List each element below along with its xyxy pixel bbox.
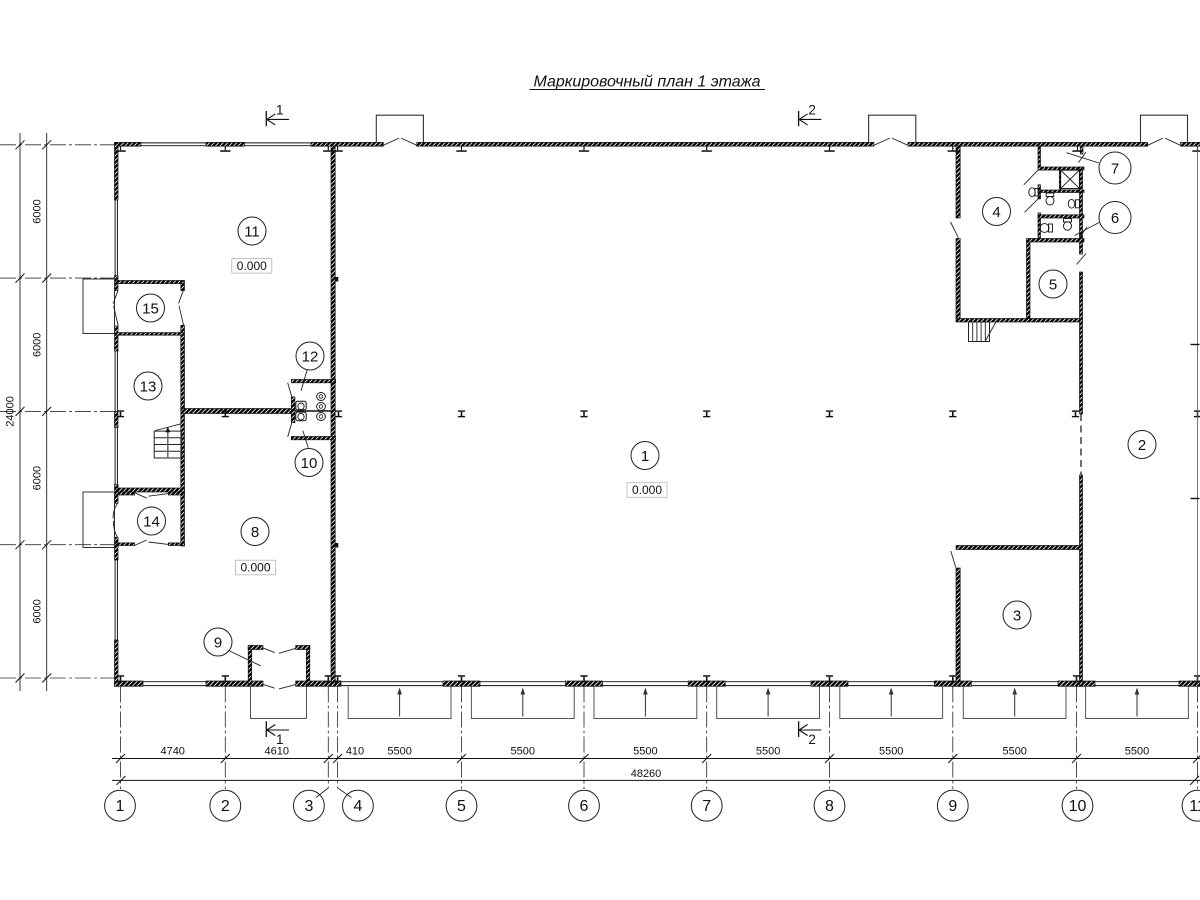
svg-text:12: 12	[302, 348, 319, 365]
svg-text:13: 13	[140, 378, 157, 395]
svg-text:4610: 4610	[265, 746, 289, 758]
svg-text:5: 5	[457, 798, 466, 815]
svg-text:6000: 6000	[32, 599, 44, 623]
svg-text:7: 7	[1111, 160, 1119, 177]
svg-text:Маркировочный план 1 этажа: Маркировочный план 1 этажа	[533, 74, 760, 91]
svg-text:6000: 6000	[32, 333, 44, 357]
svg-text:2: 2	[808, 732, 816, 747]
svg-text:1: 1	[116, 798, 125, 815]
svg-text:6: 6	[1111, 210, 1119, 227]
svg-text:6000: 6000	[32, 199, 44, 223]
svg-text:5500: 5500	[387, 746, 411, 758]
svg-text:5500: 5500	[511, 746, 535, 758]
svg-text:0.000: 0.000	[632, 483, 662, 497]
svg-text:3: 3	[304, 798, 313, 815]
svg-text:15: 15	[142, 300, 159, 317]
svg-text:0.000: 0.000	[237, 259, 267, 273]
svg-text:3: 3	[1013, 607, 1021, 624]
svg-text:9: 9	[214, 634, 222, 651]
svg-text:5500: 5500	[1002, 746, 1026, 758]
svg-text:4740: 4740	[160, 746, 184, 758]
svg-text:2: 2	[221, 798, 230, 815]
svg-text:2: 2	[1138, 437, 1146, 454]
svg-text:410: 410	[346, 746, 364, 758]
svg-text:0.000: 0.000	[240, 561, 270, 575]
svg-text:5: 5	[1049, 276, 1057, 293]
svg-text:5500: 5500	[756, 746, 780, 758]
svg-text:2: 2	[808, 103, 816, 118]
svg-text:24000: 24000	[5, 396, 17, 427]
svg-text:4: 4	[353, 798, 362, 815]
svg-text:10: 10	[1069, 798, 1087, 815]
svg-text:1: 1	[276, 732, 284, 747]
svg-text:1: 1	[276, 103, 284, 118]
svg-text:10: 10	[301, 455, 318, 472]
svg-text:1: 1	[641, 448, 649, 465]
svg-text:11: 11	[244, 223, 260, 240]
svg-text:9: 9	[948, 798, 957, 815]
svg-text:48260: 48260	[631, 768, 662, 780]
svg-text:7: 7	[702, 798, 711, 815]
svg-text:11: 11	[1189, 798, 1200, 815]
svg-text:6000: 6000	[32, 466, 44, 490]
svg-text:5500: 5500	[1125, 746, 1149, 758]
svg-text:8: 8	[825, 798, 834, 815]
svg-text:6: 6	[580, 798, 589, 815]
svg-text:4: 4	[992, 204, 1000, 221]
svg-text:5500: 5500	[633, 746, 657, 758]
svg-text:14: 14	[143, 513, 160, 530]
svg-text:8: 8	[251, 524, 259, 541]
svg-text:5500: 5500	[879, 746, 903, 758]
